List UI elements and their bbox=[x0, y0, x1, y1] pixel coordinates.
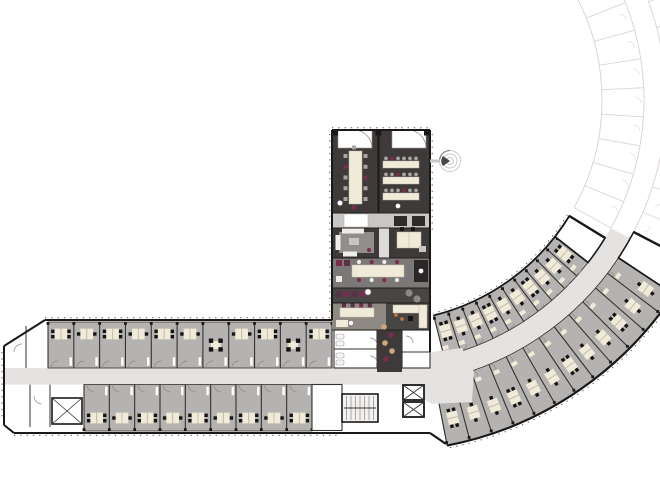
chair bbox=[408, 173, 412, 177]
desk bbox=[235, 329, 241, 340]
chair bbox=[352, 146, 356, 150]
office-chair bbox=[296, 347, 300, 351]
office-chair bbox=[342, 303, 346, 307]
cabinet bbox=[224, 357, 227, 366]
office-chair bbox=[255, 414, 258, 417]
floor-plan-svg bbox=[0, 0, 660, 500]
chair bbox=[364, 165, 368, 169]
desk bbox=[268, 329, 274, 340]
office-chair bbox=[218, 347, 222, 351]
office-chair bbox=[306, 414, 309, 417]
desk bbox=[158, 329, 164, 340]
desk bbox=[87, 329, 93, 340]
cabinet bbox=[130, 387, 133, 396]
office-chair bbox=[209, 347, 213, 351]
office-chair bbox=[93, 332, 96, 335]
chair bbox=[364, 176, 368, 180]
ghost-partition bbox=[599, 139, 640, 146]
chair bbox=[390, 173, 394, 177]
ghost-door-swing bbox=[633, 69, 639, 75]
curved-wing bbox=[430, 215, 660, 448]
desk bbox=[113, 329, 119, 340]
cabinet bbox=[231, 387, 234, 396]
office-chair bbox=[154, 330, 157, 333]
wall-pier bbox=[47, 322, 50, 325]
sofa bbox=[336, 235, 341, 250]
chair bbox=[370, 260, 374, 264]
cabinet bbox=[307, 387, 310, 396]
stool bbox=[400, 317, 404, 321]
wall-pier bbox=[72, 322, 75, 325]
wall-pier bbox=[253, 322, 256, 325]
wall-pier bbox=[124, 322, 127, 325]
wall-pier bbox=[184, 428, 187, 431]
cabinet bbox=[198, 357, 201, 366]
training-table bbox=[383, 177, 419, 184]
wall-pier bbox=[202, 322, 205, 325]
ghost-door-swing bbox=[622, 180, 628, 186]
ghost-partition bbox=[602, 88, 644, 90]
wall-pier bbox=[501, 287, 504, 290]
stool bbox=[394, 313, 398, 317]
desk bbox=[190, 329, 196, 340]
chair bbox=[395, 278, 399, 282]
wall-pier bbox=[83, 428, 86, 431]
entry-vestibule bbox=[392, 130, 426, 148]
ghost-partition bbox=[594, 30, 635, 41]
cabinet bbox=[155, 387, 158, 396]
desk bbox=[319, 329, 325, 340]
ghost-door-swing bbox=[635, 97, 641, 103]
office-chair bbox=[239, 414, 242, 417]
ghost-partition bbox=[586, 3, 625, 19]
ghost-door-swing bbox=[644, 226, 650, 232]
chair bbox=[352, 206, 356, 210]
desk bbox=[268, 413, 274, 424]
cabinet bbox=[282, 387, 285, 396]
desk bbox=[106, 329, 112, 340]
closet bbox=[344, 214, 368, 227]
chair bbox=[364, 154, 368, 158]
wall-pier bbox=[133, 428, 136, 431]
chair bbox=[390, 157, 394, 161]
bar-stool bbox=[383, 356, 389, 362]
office-chair bbox=[171, 330, 174, 333]
wall-pier bbox=[433, 317, 436, 320]
desk bbox=[198, 413, 204, 424]
sofa bbox=[343, 252, 357, 257]
desk bbox=[122, 413, 128, 424]
cabinet bbox=[276, 357, 279, 366]
chair bbox=[414, 173, 418, 177]
office-chair bbox=[138, 419, 141, 422]
office-chair bbox=[274, 335, 277, 338]
office-chair bbox=[258, 335, 261, 338]
office-chair bbox=[154, 419, 157, 422]
ghost-wall-arc bbox=[630, 0, 660, 239]
office-chair bbox=[77, 332, 80, 335]
office-chair bbox=[286, 339, 290, 343]
chair bbox=[396, 157, 400, 161]
ghost-partition bbox=[602, 114, 644, 117]
office-chair bbox=[248, 332, 251, 335]
office-chair bbox=[171, 335, 174, 338]
desk bbox=[249, 413, 255, 424]
office-chair bbox=[296, 339, 300, 343]
desk bbox=[173, 413, 179, 424]
chair bbox=[344, 197, 348, 201]
desk bbox=[139, 329, 145, 340]
office-chair bbox=[309, 330, 312, 333]
ghost-partition bbox=[657, 11, 660, 28]
desk bbox=[224, 413, 230, 424]
wall-pier bbox=[536, 259, 539, 262]
cabinet bbox=[257, 387, 260, 396]
wall-pier bbox=[285, 428, 288, 431]
desk bbox=[300, 413, 306, 424]
desk bbox=[141, 413, 147, 424]
armchair bbox=[336, 276, 342, 282]
exterior-wall bbox=[430, 433, 446, 444]
office-chair bbox=[179, 416, 182, 419]
chair bbox=[370, 278, 374, 282]
coffee-table bbox=[349, 238, 359, 245]
office-chair bbox=[351, 303, 355, 307]
office-chair bbox=[264, 416, 267, 419]
printer-cabinet bbox=[394, 216, 407, 226]
wall-pier bbox=[511, 421, 514, 424]
side-chair bbox=[337, 200, 342, 205]
exterior-wall bbox=[4, 320, 45, 346]
wall-pier bbox=[609, 361, 612, 364]
chair bbox=[396, 173, 400, 177]
side-table bbox=[419, 246, 426, 252]
desk bbox=[90, 413, 96, 424]
chair bbox=[364, 197, 368, 201]
desk bbox=[261, 329, 267, 340]
wall-pier bbox=[525, 269, 528, 272]
office-chair bbox=[154, 414, 157, 417]
cabinet bbox=[250, 357, 253, 366]
office-chair bbox=[274, 330, 277, 333]
toilet-fixture bbox=[336, 334, 344, 339]
wall-pier bbox=[513, 279, 516, 282]
office-chair bbox=[180, 332, 183, 335]
desk-row bbox=[340, 308, 374, 317]
exterior-wall bbox=[4, 425, 14, 433]
desk bbox=[54, 329, 60, 340]
desk bbox=[116, 413, 122, 424]
cabinet bbox=[327, 357, 330, 366]
training-table bbox=[383, 193, 419, 200]
chair bbox=[344, 176, 348, 180]
chair bbox=[384, 189, 388, 193]
office-chair bbox=[154, 335, 157, 338]
office-chair bbox=[87, 419, 90, 422]
office-chair bbox=[145, 332, 148, 335]
wall-pier bbox=[235, 428, 238, 431]
wall-pier bbox=[424, 130, 430, 136]
wall-pier bbox=[642, 328, 645, 331]
booth-seat bbox=[336, 291, 342, 297]
ghost-partition bbox=[585, 186, 624, 202]
chair bbox=[396, 189, 400, 193]
office-chair bbox=[325, 330, 328, 333]
swivel-chair bbox=[365, 289, 371, 295]
chair bbox=[402, 189, 406, 193]
cabinet bbox=[172, 357, 175, 366]
ghost-wall-arc bbox=[611, 0, 644, 228]
booth-seat bbox=[344, 291, 350, 297]
office-chair bbox=[51, 330, 54, 333]
wall-pier bbox=[572, 389, 575, 392]
ghost-partition bbox=[652, 187, 660, 207]
wall-pier bbox=[656, 310, 659, 313]
office-chair bbox=[239, 419, 242, 422]
chair bbox=[414, 157, 418, 161]
chair bbox=[344, 165, 348, 169]
wall-pier bbox=[159, 428, 162, 431]
side-chair bbox=[396, 204, 401, 209]
desk bbox=[336, 320, 348, 327]
ghost-door-swing bbox=[655, 200, 660, 206]
desk bbox=[97, 413, 103, 424]
toilet-fixture bbox=[336, 360, 344, 365]
office-chair bbox=[103, 419, 106, 422]
wall-pier bbox=[546, 249, 549, 252]
office-chair bbox=[204, 414, 207, 417]
office-chair bbox=[306, 419, 309, 422]
office-chair bbox=[129, 332, 132, 335]
cabinet bbox=[147, 357, 150, 366]
ghost-partition bbox=[599, 59, 640, 66]
cabinet bbox=[95, 357, 98, 366]
chair bbox=[395, 260, 399, 264]
office-chair bbox=[230, 416, 233, 419]
chair bbox=[344, 186, 348, 190]
armchair bbox=[344, 260, 350, 266]
booth-seat bbox=[360, 291, 366, 297]
bar-stool bbox=[381, 324, 387, 330]
office-chair bbox=[232, 332, 235, 335]
cabinet bbox=[69, 357, 72, 366]
office-chair bbox=[138, 414, 141, 417]
chair bbox=[349, 321, 354, 326]
wall-pier bbox=[108, 428, 111, 431]
office-chair bbox=[196, 332, 199, 335]
booth-seat bbox=[352, 291, 358, 297]
door-swing bbox=[14, 344, 22, 352]
office-chair bbox=[290, 414, 293, 417]
chair bbox=[357, 260, 361, 264]
chair bbox=[384, 157, 388, 161]
office-chair bbox=[119, 335, 122, 338]
chair bbox=[382, 260, 386, 264]
bar-stool bbox=[382, 340, 388, 346]
office-chair bbox=[218, 339, 222, 343]
office-chair bbox=[103, 335, 106, 338]
desk bbox=[242, 329, 248, 340]
office-chair bbox=[325, 335, 328, 338]
ghost-door-swing bbox=[628, 41, 634, 47]
chair bbox=[357, 278, 361, 282]
wall-pier bbox=[475, 302, 478, 305]
desk bbox=[274, 413, 280, 424]
chair bbox=[408, 316, 413, 321]
ghost-partition bbox=[643, 212, 660, 238]
chair bbox=[419, 269, 424, 274]
white-room bbox=[312, 385, 342, 431]
desk bbox=[217, 413, 223, 424]
chair bbox=[402, 157, 406, 161]
office-chair bbox=[67, 330, 70, 333]
office-chair bbox=[188, 419, 191, 422]
desk bbox=[164, 329, 170, 340]
office-chair bbox=[128, 416, 131, 419]
desk bbox=[192, 413, 198, 424]
ghost-wall-arc bbox=[574, 0, 602, 208]
office-chair bbox=[368, 303, 372, 307]
desk bbox=[80, 329, 86, 340]
toilet-fixture bbox=[336, 341, 344, 346]
cabinet bbox=[181, 387, 184, 396]
office-chair bbox=[87, 414, 90, 417]
desk bbox=[184, 329, 190, 340]
wall-pier bbox=[227, 322, 230, 325]
round-table bbox=[413, 295, 420, 302]
cabinet bbox=[105, 387, 108, 396]
wall-pier bbox=[260, 428, 263, 431]
wall-pier bbox=[490, 429, 493, 432]
door-swing bbox=[34, 396, 42, 404]
wall-pier bbox=[209, 428, 212, 431]
ghost-door-swing bbox=[634, 125, 640, 131]
wall-pier bbox=[461, 308, 464, 311]
bar-stool bbox=[389, 348, 395, 354]
desk bbox=[313, 329, 319, 340]
entry-vestibule bbox=[338, 130, 372, 148]
long-table bbox=[352, 265, 404, 277]
office-chair bbox=[51, 335, 54, 338]
chair bbox=[384, 173, 388, 177]
chair bbox=[408, 189, 412, 193]
wall-pier bbox=[150, 322, 153, 325]
office-chair bbox=[290, 419, 293, 422]
office-chair bbox=[359, 303, 363, 307]
office-chair bbox=[103, 414, 106, 417]
wall-pier bbox=[468, 436, 471, 439]
desk bbox=[132, 329, 138, 340]
desk bbox=[148, 413, 154, 424]
training-table bbox=[383, 161, 419, 168]
office-chair bbox=[258, 330, 261, 333]
wall-pier bbox=[176, 322, 179, 325]
wall-pier bbox=[591, 375, 594, 378]
chair bbox=[364, 186, 368, 190]
office-chair bbox=[119, 330, 122, 333]
chair bbox=[344, 154, 348, 158]
office-chair bbox=[255, 419, 258, 422]
chair bbox=[408, 157, 412, 161]
sofa bbox=[342, 229, 364, 234]
wall-pier bbox=[553, 401, 556, 404]
floor-plan bbox=[0, 0, 660, 500]
cabinet bbox=[302, 357, 305, 366]
kitchen-counter bbox=[419, 305, 427, 328]
wall-pier bbox=[279, 322, 282, 325]
office-chair bbox=[188, 414, 191, 417]
office-chair bbox=[112, 416, 115, 419]
desk bbox=[293, 413, 299, 424]
ghost-door-swing bbox=[620, 14, 626, 20]
wall-pier bbox=[376, 130, 382, 136]
ghost-door-swing bbox=[612, 206, 618, 212]
desk bbox=[242, 413, 248, 424]
wall-pier bbox=[447, 313, 450, 316]
office-chair bbox=[163, 416, 166, 419]
wall-pier bbox=[533, 412, 536, 415]
office-chair bbox=[214, 416, 217, 419]
printer-cabinet bbox=[412, 216, 425, 226]
chair bbox=[382, 278, 386, 282]
office-chair bbox=[67, 335, 70, 338]
office-chair bbox=[309, 335, 312, 338]
round-table bbox=[405, 289, 412, 296]
wall-pier bbox=[98, 322, 101, 325]
chair bbox=[402, 173, 406, 177]
office-chair bbox=[286, 347, 290, 351]
wall-pier bbox=[305, 322, 308, 325]
bar-stool bbox=[388, 332, 394, 338]
toilet-fixture bbox=[336, 353, 344, 358]
chair bbox=[414, 189, 418, 193]
armchair bbox=[336, 260, 342, 266]
ghost-partition bbox=[593, 162, 633, 174]
chair bbox=[390, 189, 394, 193]
desk bbox=[166, 413, 172, 424]
office-chair bbox=[103, 330, 106, 333]
wall-pier bbox=[488, 295, 491, 298]
wall-pier bbox=[626, 345, 629, 348]
main-corridor bbox=[4, 368, 436, 385]
office-chair bbox=[204, 419, 207, 422]
cabinet bbox=[206, 387, 209, 396]
cushion bbox=[367, 248, 371, 252]
office-chair bbox=[209, 339, 213, 343]
office-chair bbox=[280, 416, 283, 419]
conference-table bbox=[349, 151, 362, 204]
wall-pier bbox=[332, 130, 338, 136]
ghost-partition bbox=[649, 0, 660, 2]
cabinet bbox=[121, 357, 124, 366]
desk bbox=[61, 329, 67, 340]
ghost-door-swing bbox=[629, 153, 635, 159]
